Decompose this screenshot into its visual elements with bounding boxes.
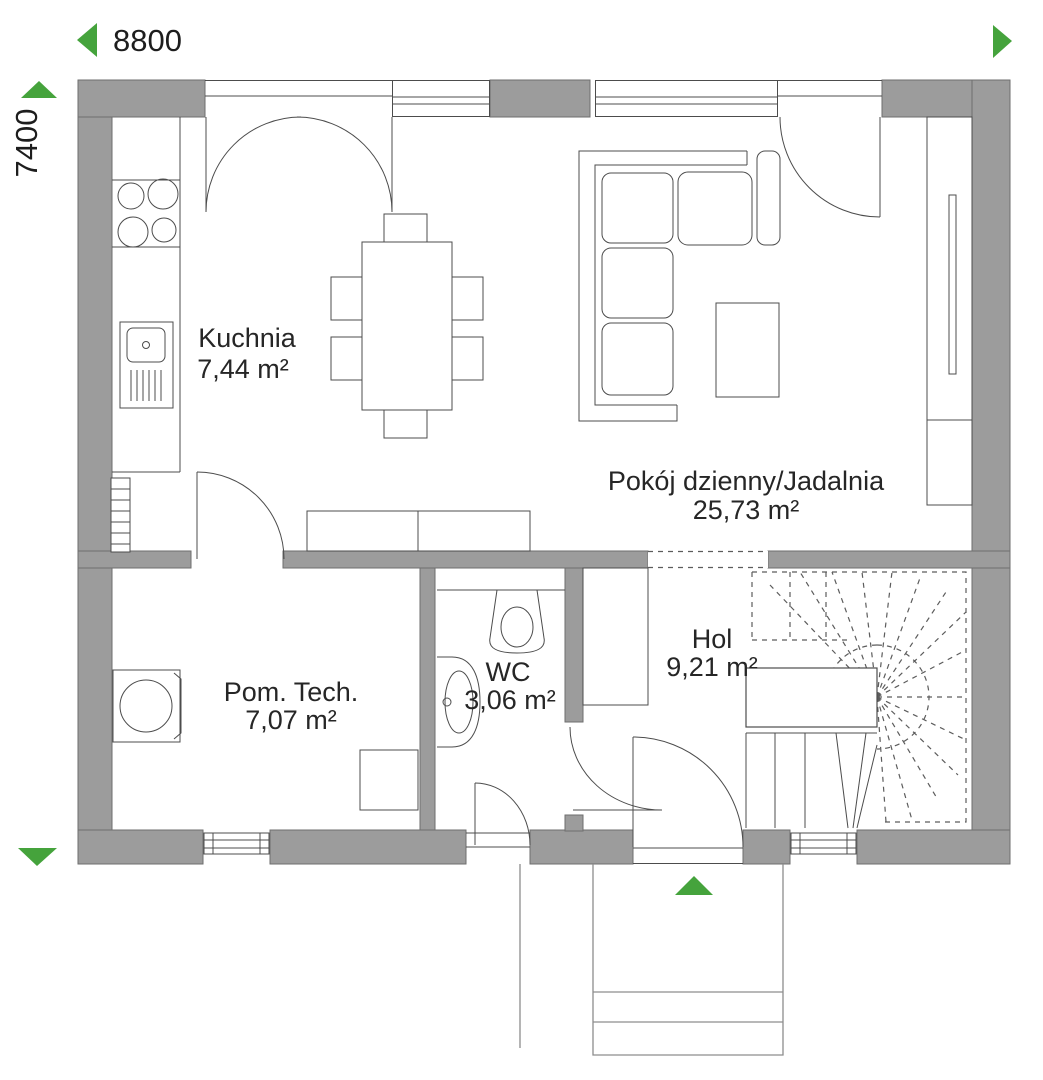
wall-segment [857, 830, 1010, 864]
entrance-arrow-icon [675, 876, 713, 895]
chair [331, 337, 363, 380]
dimension-arrow-left-icon [77, 23, 97, 57]
toilet [490, 590, 545, 653]
coffee-table [716, 303, 779, 397]
entrance-porch [520, 864, 783, 1055]
staircase [746, 572, 966, 828]
room-area-hall: 9,21 m² [666, 652, 758, 682]
stairs-landing [746, 668, 877, 727]
dimension-arrow-right-icon [993, 25, 1012, 58]
door-hall [570, 727, 662, 810]
door-garden-double [205, 81, 392, 213]
chair [384, 409, 427, 438]
kitchen-sink [120, 322, 173, 408]
dining-set [331, 214, 483, 438]
radiator [111, 478, 130, 552]
door-entrance [633, 737, 743, 847]
wall-segment [78, 830, 203, 864]
wall-segment [565, 568, 583, 722]
dimension-width-label: 8800 [113, 23, 182, 58]
wall-segment [270, 830, 466, 864]
sideboard [307, 511, 530, 551]
wardrobe [583, 568, 648, 705]
wall-segment [78, 80, 112, 864]
room-label-wc: WC [486, 657, 531, 687]
wall-segment [490, 80, 590, 117]
wall-segment [972, 80, 1010, 864]
passage-opening [648, 551, 768, 568]
dining-table [362, 242, 452, 410]
chair [384, 214, 427, 243]
door-living-room [778, 81, 882, 218]
room-label-hall: Hol [692, 624, 733, 654]
chair [451, 337, 483, 380]
wall-segment [530, 830, 633, 864]
wall-segment [78, 80, 205, 117]
wall-segment [565, 815, 583, 831]
window-bottom-left [204, 833, 269, 854]
tv-cabinet [927, 117, 972, 505]
window-top-left [392, 80, 490, 117]
wall-segment [283, 551, 648, 568]
window-bottom-right [791, 833, 856, 854]
room-label-kitchen: Kuchnia [198, 323, 297, 353]
water-heater [360, 750, 418, 810]
wall-segment [768, 551, 1010, 568]
kitchen-counter [112, 117, 180, 472]
room-area-technical: 7,07 m² [245, 705, 337, 735]
room-area-living: 25,73 m² [693, 495, 800, 525]
chair [451, 277, 483, 320]
threshold-entrance [633, 848, 743, 864]
stove [118, 179, 178, 247]
washing-machine [113, 670, 181, 742]
room-area-kitchen: 7,44 m² [197, 354, 289, 384]
door-wc [475, 783, 530, 845]
wall-segment [78, 551, 191, 568]
dimension-arrow-up-icon [21, 81, 57, 98]
floor-plan: 8800 7400 Kuchnia 7,44 m² Pokój dzienny/… [0, 0, 1043, 1080]
stairs-lower-flight [746, 727, 877, 828]
chair [331, 277, 363, 320]
corner-sofa [579, 151, 780, 421]
threshold-wc [466, 833, 530, 847]
room-label-technical: Pom. Tech. [224, 677, 359, 707]
window-top-right [595, 80, 778, 117]
dimension-arrow-down-icon [18, 848, 57, 866]
dimension-height-label: 7400 [9, 109, 44, 178]
room-area-wc: 3,06 m² [464, 685, 556, 715]
wall-segment [743, 830, 790, 864]
wall-segment [420, 568, 435, 830]
room-label-living: Pokój dzienny/Jadalnia [608, 466, 885, 496]
door-technical-room [197, 472, 284, 559]
